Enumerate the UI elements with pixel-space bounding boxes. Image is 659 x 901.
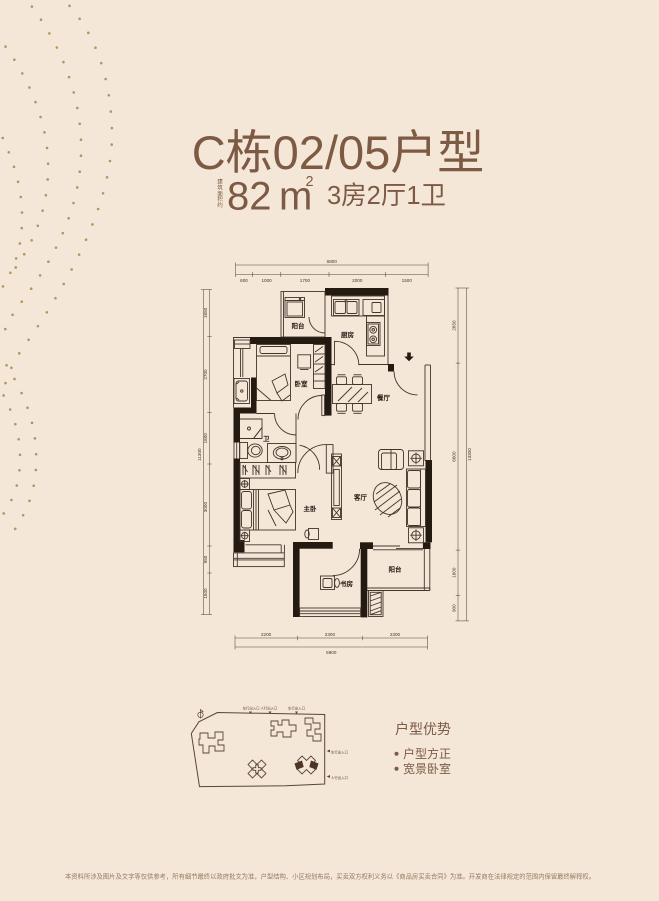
svg-text:户型方正: 户型方正: [403, 746, 451, 761]
svg-text:2000: 2000: [352, 278, 363, 283]
svg-text:950: 950: [203, 555, 208, 563]
svg-text:6900: 6900: [326, 650, 337, 655]
svg-text:1500: 1500: [402, 278, 413, 283]
svg-text:宽景卧室: 宽景卧室: [403, 761, 451, 776]
svg-text:主卧: 主卧: [304, 504, 318, 513]
svg-text:C栋02/05户型: C栋02/05户型: [192, 126, 485, 179]
svg-text:建: 建: [217, 178, 223, 186]
svg-text:3房2厅1卫: 3房2厅1卫: [327, 182, 446, 210]
svg-text:2: 2: [306, 174, 314, 190]
svg-text:1800: 1800: [203, 433, 208, 444]
svg-text:书房: 书房: [340, 579, 354, 588]
svg-text:人行出入口: 人行出入口: [331, 775, 348, 780]
svg-text:车行出入口 人行出入口: 车行出入口 人行出入口: [243, 706, 278, 711]
svg-text:2200: 2200: [261, 632, 272, 637]
svg-text:本资料所涉及图片及文字等仅供参考，所有细节最终以政府批文为准: 本资料所涉及图片及文字等仅供参考，所有细节最终以政府批文为准，户型结构、小区规划…: [65, 872, 595, 881]
svg-text:1500: 1500: [203, 588, 208, 599]
svg-text:2700: 2700: [203, 369, 208, 380]
svg-text:6600: 6600: [452, 451, 457, 462]
svg-text:2650: 2650: [452, 320, 457, 331]
svg-text:卫: 卫: [263, 435, 270, 443]
svg-text:户型优势: 户型优势: [395, 721, 451, 737]
svg-text:1650: 1650: [203, 307, 208, 318]
svg-text:阳台: 阳台: [292, 321, 306, 330]
svg-text:1600: 1600: [452, 567, 457, 578]
svg-text:餐厅: 餐厅: [376, 393, 391, 402]
svg-text:车行出入口: 车行出入口: [331, 750, 348, 755]
svg-text:1000: 1000: [261, 278, 272, 283]
svg-text:车行出入口: 车行出入口: [288, 706, 305, 711]
svg-text:客厅: 客厅: [353, 493, 368, 502]
svg-text:卧室: 卧室: [295, 379, 309, 388]
svg-text:11300: 11300: [197, 448, 202, 461]
svg-text:600: 600: [240, 278, 248, 283]
svg-text:筑: 筑: [217, 183, 223, 191]
svg-text:厨房: 厨房: [341, 330, 355, 339]
svg-text:2300: 2300: [390, 632, 401, 637]
svg-text:13300: 13300: [467, 448, 472, 461]
svg-text:阳台: 阳台: [389, 565, 403, 574]
svg-text:约: 约: [217, 201, 223, 209]
svg-text:82: 82: [227, 175, 272, 219]
svg-text:900: 900: [452, 604, 457, 612]
svg-text:1700: 1700: [300, 278, 311, 283]
svg-text:积: 积: [217, 195, 223, 203]
svg-text:3000: 3000: [203, 502, 208, 513]
svg-text:2300: 2300: [325, 632, 336, 637]
svg-text:6800: 6800: [327, 259, 338, 264]
